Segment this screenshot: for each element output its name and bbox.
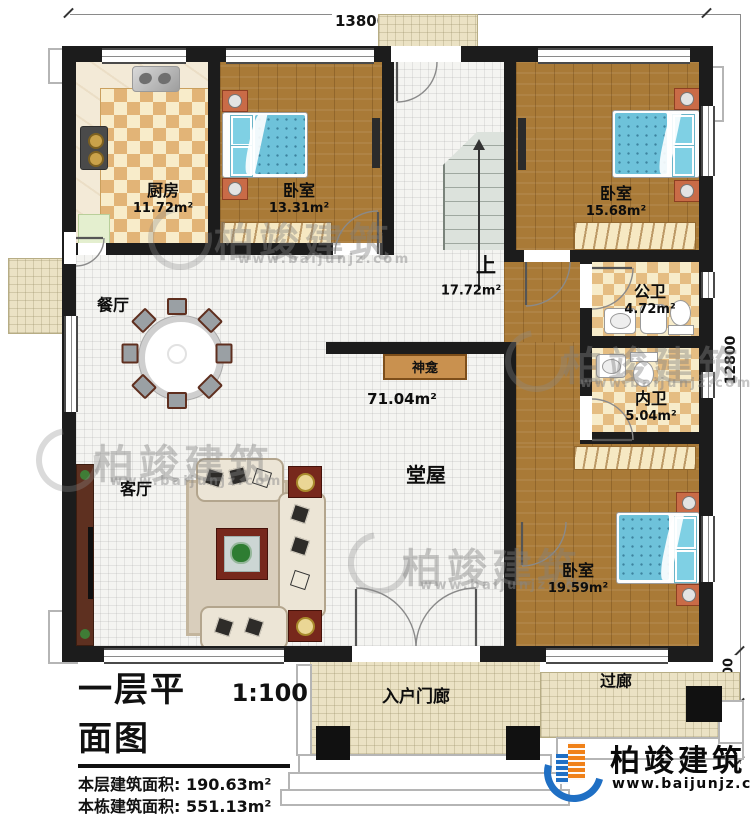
dimension-tick <box>63 8 74 19</box>
floor-plan-canvas: 13800 12800 1200 1000 <box>0 0 750 814</box>
dining-chair <box>167 298 187 315</box>
kitchen-stove <box>80 126 108 170</box>
room-area: 5.04m² <box>625 409 676 424</box>
window <box>701 516 715 582</box>
window <box>226 48 374 64</box>
kitchen-counter <box>78 214 110 244</box>
exterior-pad-top <box>378 14 478 50</box>
side-table <box>288 610 322 642</box>
plant <box>80 629 90 639</box>
room-area: 15.68m² <box>586 204 646 219</box>
bedroom3-label: 卧室 19.59m² <box>548 562 608 596</box>
porch-pillar <box>316 726 350 760</box>
dimension-tick <box>701 8 712 19</box>
room-name: 内卫 <box>625 390 676 409</box>
brand-logo-icon <box>544 738 602 796</box>
sink-basin <box>138 71 154 86</box>
title-underline <box>78 764 290 768</box>
dining-table-center <box>167 344 187 364</box>
brand-logo: 柏竣建筑 www.baijunjz.com <box>544 736 740 802</box>
entrance-opening <box>352 646 480 662</box>
hall-area-label: 71.04m² <box>367 391 437 409</box>
tv-panel <box>518 118 526 170</box>
window <box>538 48 690 64</box>
dining-chair <box>167 392 187 409</box>
sofa-cushion <box>290 536 310 556</box>
sofa-cushion <box>214 617 234 637</box>
window <box>701 106 715 176</box>
nightstand <box>674 180 700 202</box>
porch-step <box>280 789 570 806</box>
room-name: 客厅 <box>120 480 152 499</box>
room-name: 卧室 <box>269 182 329 201</box>
bed <box>616 512 700 584</box>
plan-scale: 1:100 <box>232 679 308 707</box>
wardrobe <box>574 222 696 250</box>
nightstand <box>222 90 248 112</box>
public-bath-door-opening <box>580 264 592 308</box>
room-name: 入户门廊 <box>382 687 450 707</box>
stat-line: 本层建筑面积: 190.63m² <box>78 774 308 796</box>
bed <box>222 112 308 178</box>
sink-basin <box>157 71 173 86</box>
sofa <box>278 492 326 618</box>
wall <box>504 62 516 262</box>
side-door-opening <box>64 232 76 264</box>
shrine-label: 神龛 <box>412 361 438 376</box>
plan-title: 一层平面图 <box>78 662 218 760</box>
room-area: 11.72m² <box>133 201 193 216</box>
bedroom2-label: 卧室 15.68m² <box>586 185 646 219</box>
stat-line: 本栋建筑面积: 551.13m² <box>78 796 308 814</box>
corridor-label: 过廊 <box>600 673 632 692</box>
tv-cabinet <box>76 464 94 646</box>
dining-chair <box>122 344 139 364</box>
sofa <box>200 606 288 650</box>
window <box>102 48 186 64</box>
room-name: 卧室 <box>548 562 608 581</box>
room-area: 71.04m² <box>367 390 437 408</box>
stove-burner <box>88 133 104 149</box>
title-block: 一层平面图 1:100 本层建筑面积: 190.63m² 本栋建筑面积: 551… <box>78 662 308 814</box>
room-name: 堂屋 <box>406 463 446 487</box>
hall-label: 堂屋 <box>406 464 446 488</box>
private-bath-door-opening <box>580 396 592 440</box>
nightstand <box>674 88 700 110</box>
living-label: 客厅 <box>120 481 152 500</box>
room-name: 厨房 <box>133 182 193 201</box>
pillow <box>675 550 696 582</box>
room-area: 17.72m² <box>441 283 501 298</box>
room-name: 过廊 <box>600 672 632 691</box>
dining-chair <box>216 344 233 364</box>
wall <box>326 342 516 354</box>
logo-building-icon <box>556 754 568 784</box>
sofa-cushion <box>290 504 310 524</box>
logo-building-icon <box>568 742 585 780</box>
bed <box>612 110 700 178</box>
room-name: 卧室 <box>586 185 646 204</box>
tv-screen <box>88 527 93 599</box>
porch-label: 入户门廊 <box>382 687 450 707</box>
sofa-cushion <box>290 570 310 590</box>
room-name: 上 <box>476 253 496 277</box>
nightstand <box>222 178 248 200</box>
bedroom1-label: 卧室 13.31m² <box>269 182 329 216</box>
plant <box>232 544 250 562</box>
stairs-area-label: 17.72m² <box>441 283 501 298</box>
corridor-pillar <box>686 686 722 722</box>
table-ornament <box>296 473 315 492</box>
room-area: 4.72m² <box>624 302 675 317</box>
watermark-url: www.baijunjz.com <box>238 252 411 267</box>
kitchen-sink <box>132 66 180 92</box>
brand-website: www.baijunjz.com <box>612 776 750 792</box>
kitchen-door-opening <box>78 243 106 255</box>
shrine-shelf: 神龛 <box>383 354 467 380</box>
table-ornament <box>296 617 315 636</box>
private-bath-label: 内卫 5.04m² <box>625 390 676 424</box>
window <box>701 272 715 298</box>
wardrobe <box>574 446 696 470</box>
window <box>64 316 78 412</box>
room-name: 公卫 <box>624 283 675 302</box>
dining-label: 餐厅 <box>97 297 129 316</box>
kitchen-label: 厨房 11.72m² <box>133 182 193 216</box>
coffee-table <box>216 528 268 580</box>
window <box>546 648 668 664</box>
room-area: 19.59m² <box>548 581 608 596</box>
room-area: 13.31m² <box>269 201 329 216</box>
stairs-label: 上 <box>476 254 496 278</box>
tv-panel <box>372 118 380 168</box>
pillow <box>673 146 694 176</box>
brand-name: 柏竣建筑 <box>610 736 746 780</box>
room-name: 餐厅 <box>97 296 129 315</box>
side-table <box>288 466 322 498</box>
public-bath-label: 公卫 4.72m² <box>624 283 675 317</box>
exterior-pad-left <box>8 258 64 334</box>
sofa-cushion <box>244 617 264 637</box>
stove-burner <box>88 151 104 167</box>
wall <box>504 342 516 646</box>
porch-pillar <box>506 726 540 760</box>
wall <box>592 432 699 444</box>
stair-arrow-icon <box>473 139 485 150</box>
back-door-opening <box>391 46 461 62</box>
bedroom2-door-opening <box>524 250 570 262</box>
